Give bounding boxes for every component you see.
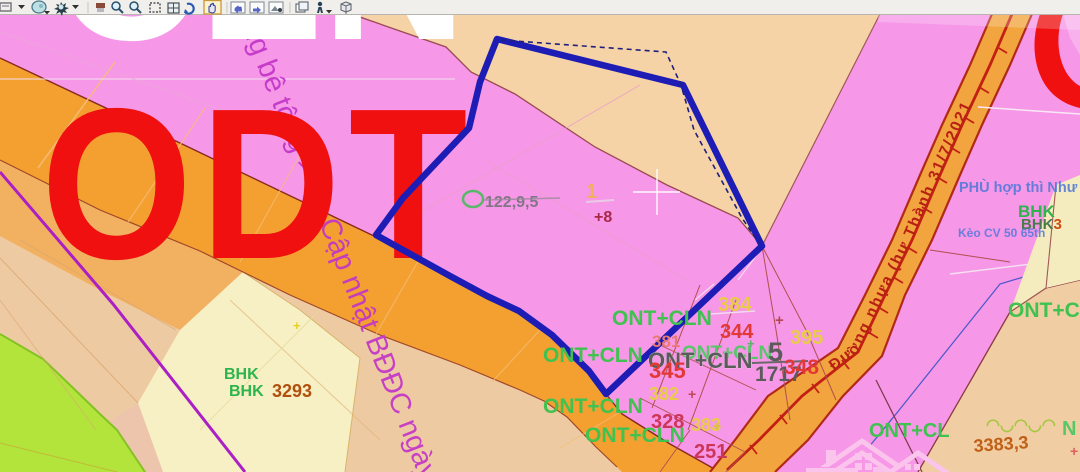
svg-text:+: + <box>293 318 301 333</box>
svg-text:ONT+CLN: ONT+CLN <box>612 307 712 330</box>
svg-text:◠◡◠◡◠: ◠◡◠◡◠ <box>986 417 1056 434</box>
svg-text:384: 384 <box>718 294 752 316</box>
svg-text:3383,3: 3383,3 <box>973 432 1029 456</box>
svg-text:Kèo CV 50 65th: Kèo CV 50 65th <box>958 226 1045 240</box>
svg-text:1: 1 <box>586 181 597 203</box>
svg-text:BHK: BHK <box>224 366 259 383</box>
svg-text:3293: 3293 <box>272 381 312 401</box>
svg-text:N: N <box>1062 418 1076 440</box>
svg-text:122,9,5: 122,9,5 <box>485 194 538 211</box>
svg-text:395: 395 <box>790 327 823 349</box>
svg-text:PHÙ hợp thì Như: PHÙ hợp thì Như <box>959 178 1078 196</box>
svg-text:BHK: BHK <box>229 383 264 400</box>
svg-text:+: + <box>747 336 755 351</box>
svg-text:+: + <box>775 312 784 329</box>
svg-text:ONT+CLN: ONT+CLN <box>543 395 643 418</box>
svg-text:ODT: ODT <box>41 64 476 304</box>
svg-text:381: 381 <box>652 332 680 351</box>
svg-text:+8: +8 <box>594 209 612 226</box>
svg-text:ONT+C: ONT+C <box>1008 299 1080 322</box>
svg-text:328: 328 <box>651 411 684 433</box>
svg-text:+: + <box>1070 443 1078 459</box>
svg-text:+: + <box>713 418 721 434</box>
svg-text:ONT+CLN: ONT+CLN <box>543 344 643 367</box>
svg-text:345: 345 <box>649 358 686 383</box>
svg-text:+: + <box>688 386 696 402</box>
svg-text:ONT+CL: ONT+CL <box>869 420 950 442</box>
svg-text:382: 382 <box>649 384 679 404</box>
svg-text:251: 251 <box>694 441 727 463</box>
svg-text:348: 348 <box>784 356 819 379</box>
